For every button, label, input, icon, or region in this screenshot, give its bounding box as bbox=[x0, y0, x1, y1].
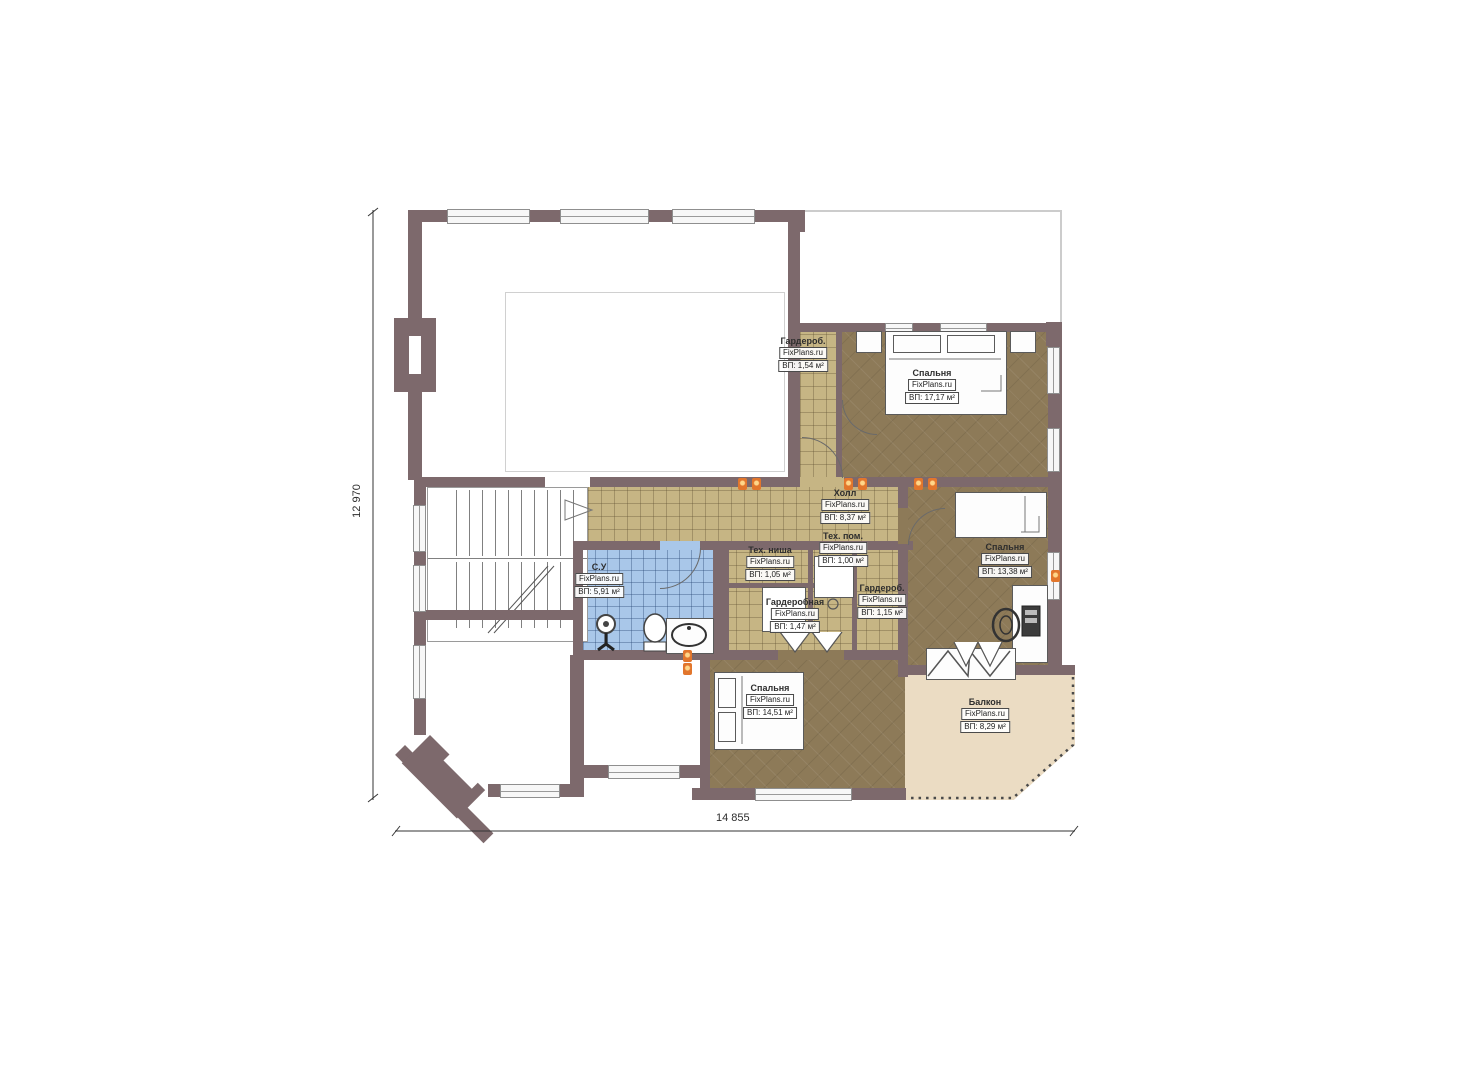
room-area: ВП: 1,15 м² bbox=[857, 607, 907, 619]
window-left-2 bbox=[413, 565, 426, 612]
heat-marker-3b bbox=[928, 478, 937, 490]
room-area: ВП: 8,29 м² bbox=[960, 721, 1010, 733]
room-area: ВП: 17,17 м² bbox=[905, 392, 959, 404]
wall-mid-horizontal bbox=[420, 477, 1048, 487]
floor-plan: Гардероб. FixPlans.ru ВП: 1,54 м² Спальн… bbox=[0, 0, 1474, 1080]
room-label-bedroom-tr: Спальня FixPlans.ru ВП: 17,17 м² bbox=[905, 368, 959, 404]
room-area: ВП: 1,47 м² bbox=[770, 621, 820, 633]
shower-icon bbox=[590, 608, 624, 652]
window-bl-bottom bbox=[500, 784, 560, 798]
room-label-hall: Холл FixPlans.ru ВП: 8,37 м² bbox=[820, 488, 870, 524]
room-area: ВП: 8,37 м² bbox=[820, 512, 870, 524]
garderobnaya-door-leaves bbox=[778, 630, 844, 654]
room-name: Гардероб. bbox=[780, 336, 825, 346]
bed-single-fold bbox=[955, 492, 1045, 536]
room-name: Холл bbox=[834, 488, 857, 498]
watermark: FixPlans.ru bbox=[771, 608, 819, 620]
window-top-1 bbox=[447, 209, 530, 224]
chimney-left-flue bbox=[409, 336, 421, 374]
dimension-line-bottom bbox=[395, 824, 1075, 838]
room-label-wardrobe-small: Гардероб. FixPlans.ru ВП: 1,15 м² bbox=[857, 583, 907, 619]
balcony-railing bbox=[905, 675, 1075, 800]
room-label-balcony: Балкон FixPlans.ru ВП: 8,29 м² bbox=[960, 697, 1010, 733]
wall-bath-right bbox=[713, 541, 723, 660]
room-area: ВП: 13,38 м² bbox=[978, 566, 1032, 578]
heat-marker-right-wall bbox=[1051, 570, 1060, 582]
room-name: Балкон bbox=[969, 697, 1002, 707]
room-name: Тех. ниша bbox=[748, 545, 791, 555]
window-bl-left bbox=[413, 645, 426, 699]
watermark: FixPlans.ru bbox=[908, 379, 956, 391]
room-label-tech-room: Тех. пом. FixPlans.ru ВП: 1,00 м² bbox=[818, 531, 868, 567]
heat-marker-bath-b bbox=[683, 663, 692, 675]
nightstand-tr-left bbox=[856, 331, 882, 353]
watermark: FixPlans.ru bbox=[746, 694, 794, 706]
watermark: FixPlans.ru bbox=[819, 542, 867, 554]
roof-outline bbox=[788, 210, 1062, 325]
sink-icon bbox=[666, 618, 712, 652]
watermark: FixPlans.ru bbox=[821, 499, 869, 511]
room-area: ВП: 1,05 м² bbox=[745, 569, 795, 581]
balcony-door-leaves bbox=[952, 640, 1004, 668]
void-opening-outline bbox=[505, 292, 785, 472]
room-label-bedroom-right: Спальня FixPlans.ru ВП: 13,38 м² bbox=[978, 542, 1032, 578]
watermark: FixPlans.ru bbox=[575, 573, 623, 585]
window-bottom-bedroom bbox=[755, 788, 852, 801]
watermark: FixPlans.ru bbox=[779, 347, 827, 359]
window-mid-bottom bbox=[608, 765, 680, 779]
door-gap-bedroom-tr bbox=[800, 477, 844, 487]
room-area: ВП: 14,51 м² bbox=[743, 707, 797, 719]
nightstand-tr-right bbox=[1010, 331, 1036, 353]
wall-tech-1 bbox=[723, 541, 729, 657]
watermark: FixPlans.ru bbox=[961, 708, 1009, 720]
watermark: FixPlans.ru bbox=[858, 594, 906, 606]
dimension-height-label: 12 970 bbox=[351, 484, 363, 518]
heat-marker-bath-a bbox=[683, 650, 692, 662]
wall-bath-left bbox=[573, 541, 583, 656]
room-label-garderobnaya: Гардеробная FixPlans.ru ВП: 1,47 м² bbox=[766, 597, 824, 633]
heat-marker-1a bbox=[738, 478, 747, 490]
dimension-line-left bbox=[366, 210, 380, 800]
room-name: Тех. пом. bbox=[823, 531, 863, 541]
wall-bottom-bedroom-left bbox=[700, 655, 710, 795]
room-area: ВП: 1,00 м² bbox=[818, 555, 868, 567]
room-label-bathroom: С.У FixPlans.ru ВП: 5,91 м² bbox=[574, 562, 624, 598]
room-area: ВП: 5,91 м² bbox=[574, 586, 624, 598]
heat-marker-3a bbox=[914, 478, 923, 490]
window-right-1 bbox=[1047, 347, 1060, 394]
watermark: FixPlans.ru bbox=[981, 553, 1029, 565]
room-label-bedroom-bottom: Спальня FixPlans.ru ВП: 14,51 м² bbox=[743, 683, 797, 719]
door-gap-right-bedroom bbox=[898, 508, 908, 544]
room-name: С.У bbox=[592, 562, 607, 572]
room-name: Спальня bbox=[751, 683, 790, 693]
heat-marker-1b bbox=[752, 478, 761, 490]
room-name: Спальня bbox=[986, 542, 1025, 552]
watermark: FixPlans.ru bbox=[746, 556, 794, 568]
room-name: Гардероб. bbox=[859, 583, 904, 593]
room-label-wardrobe-top: Гардероб. FixPlans.ru ВП: 1,54 м² bbox=[778, 336, 828, 372]
room-label-tech-niche: Тех. ниша FixPlans.ru ВП: 1,05 м² bbox=[745, 545, 795, 581]
window-top-3 bbox=[672, 209, 755, 224]
wall-mid-room-left bbox=[570, 655, 584, 797]
wall-bl-top bbox=[414, 610, 574, 620]
room-mid-bottom bbox=[584, 660, 692, 778]
window-top-2 bbox=[560, 209, 649, 224]
window-left-1 bbox=[413, 505, 426, 552]
room-name: Спальня bbox=[913, 368, 952, 378]
window-right-2 bbox=[1047, 428, 1060, 472]
dimension-width-label: 14 855 bbox=[716, 812, 750, 824]
room-name: Гардеробная bbox=[766, 597, 824, 607]
door-gap-stairs bbox=[545, 477, 590, 487]
room-area: ВП: 1,54 м² bbox=[778, 360, 828, 372]
